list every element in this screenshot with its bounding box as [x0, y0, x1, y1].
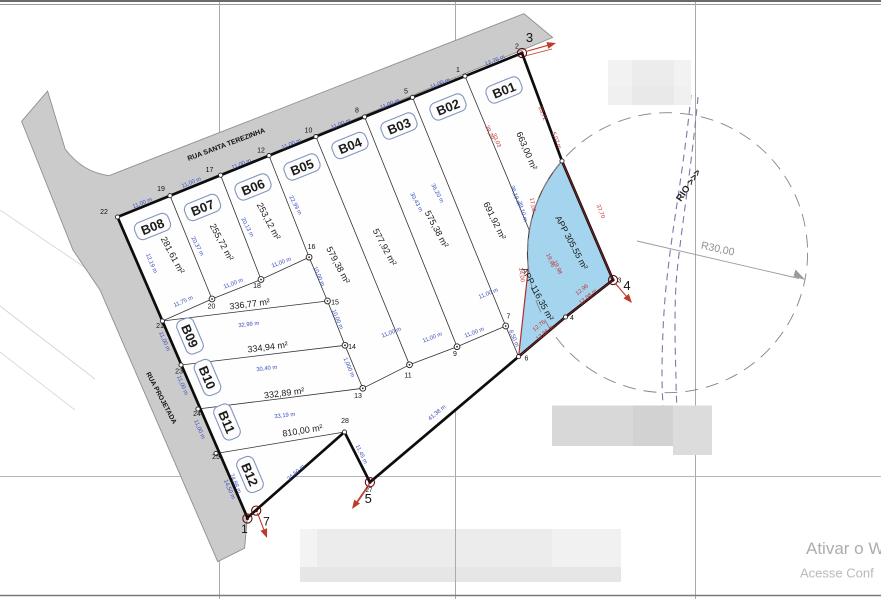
svg-text:17: 17	[206, 167, 214, 174]
svg-text:Ativar o W: Ativar o W	[806, 539, 881, 558]
svg-text:7: 7	[263, 515, 270, 529]
svg-text:6: 6	[525, 356, 529, 363]
svg-text:10: 10	[305, 128, 313, 135]
svg-text:13: 13	[354, 393, 362, 400]
svg-text:22: 22	[100, 209, 108, 216]
svg-text:27: 27	[366, 488, 373, 494]
svg-text:4: 4	[623, 278, 630, 293]
svg-text:14: 14	[348, 344, 356, 351]
svg-text:25: 25	[212, 454, 220, 461]
svg-text:7: 7	[507, 314, 511, 321]
svg-text:20: 20	[208, 304, 216, 311]
svg-text:28: 28	[341, 418, 349, 425]
svg-text:5: 5	[404, 89, 408, 96]
svg-text:9: 9	[453, 351, 457, 358]
svg-text:4: 4	[570, 315, 574, 322]
svg-text:8: 8	[355, 108, 359, 115]
svg-text:24: 24	[193, 411, 201, 418]
svg-text:1: 1	[241, 522, 248, 536]
svg-text:3: 3	[526, 30, 533, 45]
svg-text:21: 21	[156, 323, 164, 330]
svg-text:12: 12	[257, 148, 265, 155]
svg-text:1: 1	[456, 67, 460, 74]
svg-text:16: 16	[308, 244, 316, 251]
svg-text:15: 15	[331, 300, 339, 307]
svg-text:18: 18	[253, 283, 261, 290]
svg-text:11: 11	[404, 373, 411, 380]
svg-text:2: 2	[515, 44, 519, 51]
svg-text:19: 19	[157, 186, 165, 193]
svg-text:3: 3	[618, 278, 622, 285]
svg-text:Acesse Conf: Acesse Conf	[800, 566, 874, 581]
svg-text:23: 23	[175, 369, 183, 376]
